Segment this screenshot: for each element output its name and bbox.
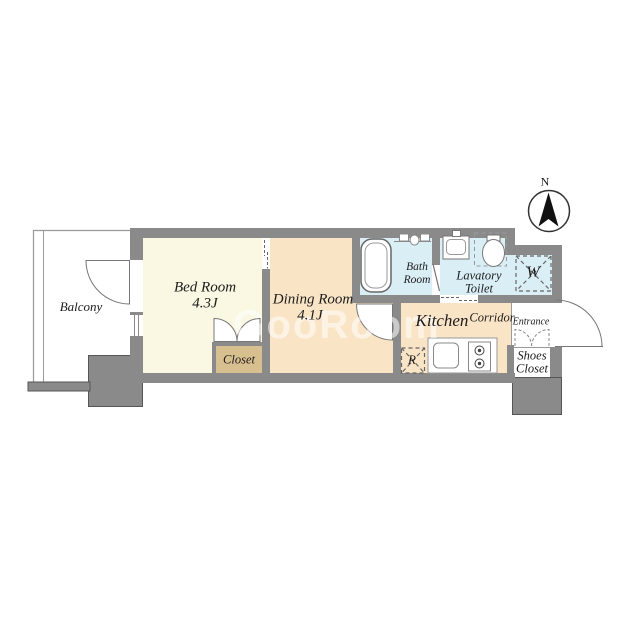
balcony-door-icon [86,261,130,305]
washer-label: W [526,264,539,282]
bedroom-size-label: 4.3J [192,296,217,313]
refrigerator-label: R [408,352,416,368]
dining-size-label: 4.1J [297,308,322,325]
bath-room-label-line2: Room [404,274,431,286]
shoes-closet-doors-icon [515,329,549,346]
shoes-closet-label-line2: Closet [516,362,548,377]
kitchen-label: Kitchen [416,311,469,331]
closet-label: Closet [223,353,255,368]
corridor-label: Corridor [469,311,514,326]
bath-room-label-line1: Bath [406,261,428,273]
bath-door-icon [433,264,440,291]
balcony-label: Balcony [60,299,103,315]
dining-label: Dining Room [273,292,353,309]
bedroom-label: Bed Room [174,280,236,297]
entrance-label: Entrance [513,317,550,328]
floor-plan: GooRoom N Balcony Bed Room 4.3J Dining R… [0,0,640,640]
bathtub-icon [361,239,391,292]
bath-counter-icon [394,234,431,245]
compass-north-label: N [541,175,550,190]
compass-icon [529,191,570,232]
lavatory-sink-icon [443,231,469,260]
toilet-icon [475,233,507,267]
lavatory-label-line2: Toilet [465,282,493,297]
entrance-door-icon [555,300,603,347]
